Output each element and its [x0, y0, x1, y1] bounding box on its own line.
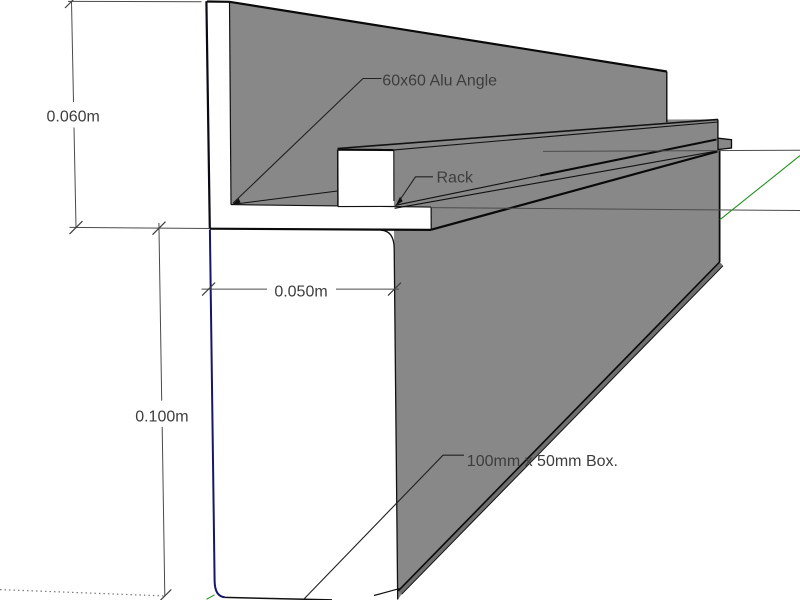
svg-text:Rack: Rack	[437, 170, 474, 187]
svg-text:100mm x 50mm Box.: 100mm x 50mm Box.	[467, 453, 618, 470]
svg-text:0.060m: 0.060m	[47, 109, 100, 126]
svg-text:0.100m: 0.100m	[135, 408, 188, 425]
svg-text:0.050m: 0.050m	[274, 284, 327, 301]
svg-text:60x60 Alu Angle: 60x60 Alu Angle	[382, 73, 497, 90]
